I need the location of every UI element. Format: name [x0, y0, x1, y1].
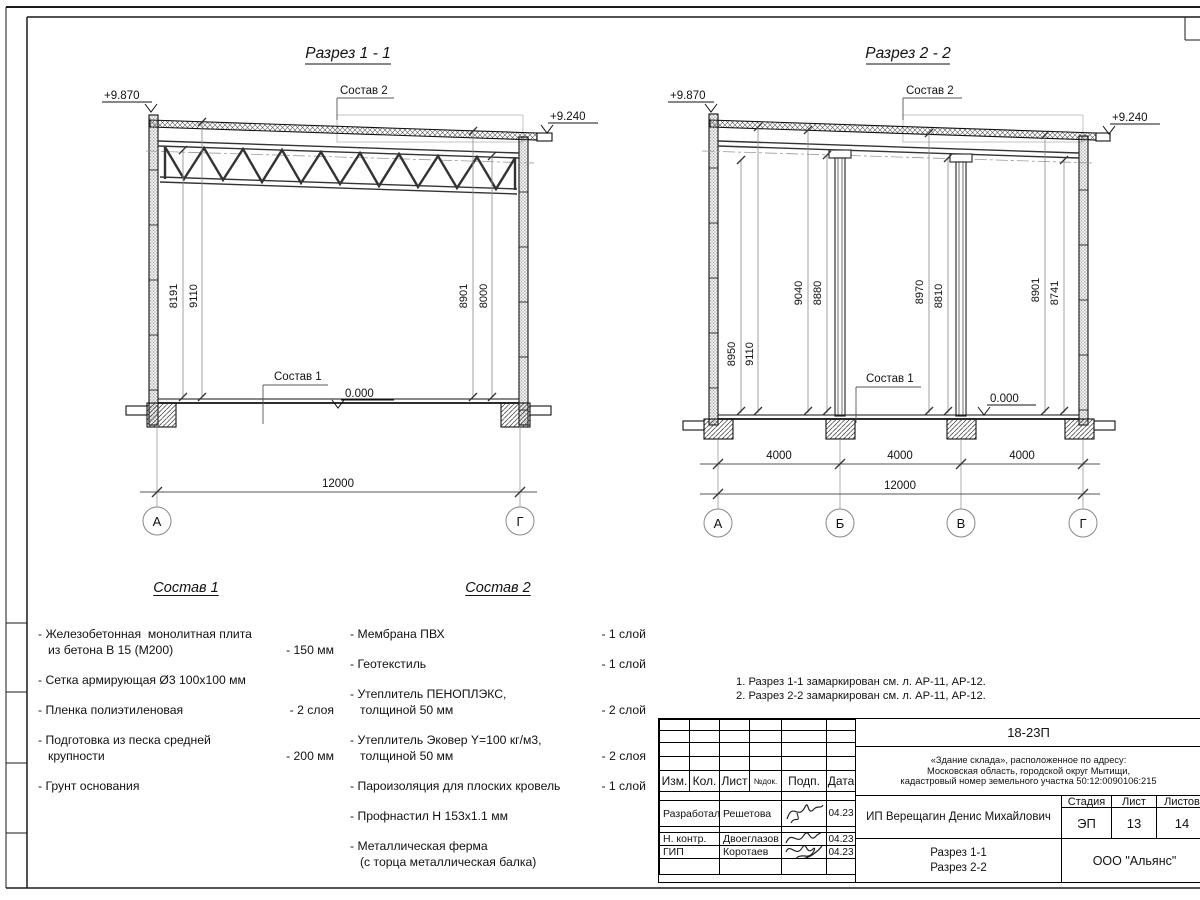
- list-item: - Утеплитель ПЕНОПЛЭКС,толщиной 50 мм - …: [350, 686, 646, 718]
- dim-label: 8950: [726, 342, 738, 366]
- floor-foundation-2: [683, 415, 1115, 439]
- axis-label: Г: [516, 514, 523, 529]
- section1-title: Разрез 1 - 1: [305, 45, 390, 62]
- notes: 1. Разрез 1-1 замаркирован см. л. АР-11,…: [736, 676, 986, 703]
- col-header-kol: Кол.: [690, 771, 720, 792]
- elevation-label: 0.000: [345, 388, 374, 400]
- list-item: - Грунт основания: [38, 778, 334, 794]
- col-header-list: Лист: [720, 771, 750, 792]
- elevation-label: +9.240: [550, 111, 586, 123]
- row-role: Разработал: [660, 801, 720, 827]
- elevation-label: 0.000: [990, 393, 1019, 405]
- stage-value: ЭП: [1061, 808, 1111, 839]
- list-item: - Сетка армирующая Ø3 100х100 мм: [38, 672, 334, 688]
- item-text: - Мембрана ПВХ: [350, 626, 445, 642]
- zero-mark-1: [332, 400, 394, 408]
- vert-dims-2: 8950 9110 9040 8880 8970 8810 8901 8741: [726, 123, 1068, 415]
- row-name: Коротаев: [720, 846, 782, 859]
- floor-foundation-1: [126, 399, 551, 427]
- zero-mark-2: [978, 405, 1036, 415]
- axis-label: Г: [1079, 516, 1086, 531]
- elevation-label: +9.240: [1112, 112, 1148, 124]
- drawing-sheet: Разрез 1 - 1: [0, 0, 1200, 900]
- sheets-total: 14: [1156, 808, 1200, 839]
- item-text: толщиной 50 мм: [350, 748, 542, 764]
- callout-label: Состав 1: [866, 373, 914, 385]
- row-name: Двоеглазов: [720, 833, 782, 846]
- col-header-izm: Изм.: [660, 771, 690, 792]
- truss: [146, 141, 534, 194]
- list-item: - Железобетонная монолитная плитаиз бето…: [38, 626, 334, 658]
- title-block: Изм. Кол. Лист №док. Подп. Дата Разработ…: [658, 718, 1200, 883]
- item-value: - 1 слой: [595, 626, 646, 642]
- client-name: ИП Верещагин Денис Михайлович: [855, 796, 1061, 839]
- dim-label: 8810: [933, 284, 945, 308]
- signature-cell: [782, 833, 827, 846]
- composition-1-title: Состав 1: [38, 580, 334, 596]
- callout-label: Состав 2: [340, 85, 388, 97]
- row-date: 04.23: [827, 833, 856, 846]
- dim-label: 8191: [168, 284, 180, 308]
- section2-title: Разрез 2 - 2: [865, 45, 951, 62]
- section-2-2: Разрез 2 - 2: [668, 45, 1160, 537]
- item-text: - Утеплитель Эковер Y=100 кг/м3,: [350, 732, 542, 748]
- dim-label: 8970: [914, 280, 926, 304]
- sheet-header: Лист: [1111, 796, 1156, 808]
- composition-2-title: Состав 2: [350, 580, 646, 596]
- signature-scribble: [783, 833, 825, 846]
- note-line: 1. Разрез 1-1 замаркирован см. л. АР-11,…: [736, 676, 986, 690]
- item-text: (с торца металлическая балка): [350, 854, 536, 870]
- sheets-header: Листов: [1156, 796, 1200, 808]
- list-item: - Геотекстиль - 1 слой: [350, 656, 646, 672]
- stage-header: Стадия: [1061, 796, 1111, 808]
- item-text: - Утеплитель ПЕНОПЛЭКС,: [350, 686, 506, 702]
- list-item: - Подготовка из песка среднейкрупности -…: [38, 732, 334, 764]
- dim-label: 8901: [1030, 278, 1042, 302]
- walls-1: [149, 115, 528, 425]
- callout-label: Состав 1: [274, 371, 322, 383]
- item-value: - 2 слоя: [596, 748, 646, 764]
- project-code: 18-23П: [855, 719, 1200, 747]
- row-date: 04.23: [827, 846, 856, 859]
- item-text: - Пленка полиэтиленовая: [38, 702, 183, 718]
- item-text: - Пароизоляция для плоских кровель: [350, 778, 560, 794]
- item-value: - 1 слой: [595, 778, 646, 794]
- project-address: «Здание склада», расположенное по адресу…: [855, 747, 1200, 796]
- roof-beam: [702, 141, 1094, 163]
- callout-label: Состав 2: [906, 85, 954, 97]
- address-line: Московская область, городской округ Мыти…: [927, 766, 1130, 777]
- axis-label: В: [957, 516, 966, 531]
- row-name: Решетова: [720, 801, 782, 827]
- list-item: - Металлическая ферма(с торца металличес…: [350, 838, 646, 870]
- item-value: - 2 слой: [595, 702, 646, 718]
- item-text: - Подготовка из песка средней: [38, 732, 211, 748]
- list-item: - Профнастил Н 153х1.1 мм: [350, 808, 646, 824]
- item-text: - Металлическая ферма: [350, 838, 536, 854]
- row-role: Н. контр.: [660, 833, 720, 846]
- signature-scribble: [783, 801, 825, 827]
- composition-1-list: Состав 1 - Железобетонная монолитная пли…: [38, 580, 334, 808]
- row-date: 04.23: [827, 801, 856, 827]
- item-text: - Сетка армирующая Ø3 100х100 мм: [38, 672, 246, 688]
- col-header-podp: Подп.: [782, 771, 827, 792]
- dim-label: 8000: [478, 284, 490, 308]
- dim-label: 4000: [766, 450, 792, 462]
- dim-label: 4000: [1009, 450, 1035, 462]
- dim-label: 9110: [188, 284, 200, 308]
- section-1-1: Разрез 1 - 1: [102, 45, 598, 535]
- signature-cell: [782, 801, 827, 827]
- list-item: - Пленка полиэтиленовая - 2 слоя: [38, 702, 334, 718]
- address-line: кадастровый номер земельного участка 50:…: [900, 776, 1156, 787]
- dim-label: 8901: [458, 284, 470, 308]
- drawing-title-line: Разрез 2-2: [930, 861, 986, 876]
- dim-label: 8741: [1049, 281, 1061, 305]
- item-text: - Железобетонная монолитная плита: [38, 626, 252, 642]
- dim-label: 8880: [812, 281, 824, 305]
- item-text: из бетона В 15 (М200): [38, 642, 252, 658]
- item-value: - 2 слоя: [284, 702, 334, 718]
- list-item: - Пароизоляция для плоских кровель - 1 с…: [350, 778, 646, 794]
- item-text: - Геотекстиль: [350, 656, 426, 672]
- dim-label: 9040: [793, 281, 805, 305]
- note-line: 2. Разрез 2-2 замаркирован см. л. АР-11,…: [736, 690, 986, 704]
- composition-2-list: Состав 2 - Мембрана ПВХ - 1 слой - Геоте…: [350, 580, 646, 884]
- dim-label: 12000: [884, 480, 916, 492]
- axis-label: А: [153, 514, 162, 529]
- axis-label: Б: [836, 516, 845, 531]
- signature-cell: [782, 846, 827, 859]
- row-role: ГИП: [660, 846, 720, 859]
- address-line: «Здание склада», расположенное по адресу…: [931, 755, 1127, 766]
- item-value: - 200 мм: [280, 748, 334, 764]
- company-name: ООО "Альянс": [1061, 839, 1200, 883]
- item-text: - Грунт основания: [38, 778, 139, 794]
- col-header-data: Дата: [827, 771, 856, 792]
- item-value: - 150 мм: [280, 642, 334, 658]
- span-dim-1: 12000 А Г: [140, 428, 537, 535]
- signature-scribble: [783, 846, 825, 859]
- axis-label: А: [714, 516, 723, 531]
- drawing-title-line: Разрез 1-1: [930, 846, 986, 861]
- title-block-revision-table: Изм. Кол. Лист №док. Подп. Дата Разработ…: [659, 719, 856, 875]
- elevation-label: +9.870: [670, 90, 706, 102]
- col-header-ndok: №док.: [750, 771, 782, 792]
- list-item: - Мембрана ПВХ - 1 слой: [350, 626, 646, 642]
- sheet-number: 13: [1111, 808, 1156, 839]
- drawing-title: Разрез 1-1 Разрез 2-2: [855, 839, 1061, 883]
- dim-label: 9110: [744, 342, 756, 366]
- item-text: крупности: [38, 748, 211, 764]
- item-text: - Профнастил Н 153х1.1 мм: [350, 808, 508, 824]
- elevation-label: +9.870: [104, 90, 140, 102]
- item-text: толщиной 50 мм: [350, 702, 506, 718]
- dim-label: 12000: [322, 478, 354, 490]
- list-item: - Утеплитель Эковер Y=100 кг/м3,толщиной…: [350, 732, 646, 764]
- item-value: - 1 слой: [595, 656, 646, 672]
- span-dims-2: 4000 4000 4000 12000 А Б В Г: [700, 440, 1100, 537]
- dim-label: 4000: [887, 450, 913, 462]
